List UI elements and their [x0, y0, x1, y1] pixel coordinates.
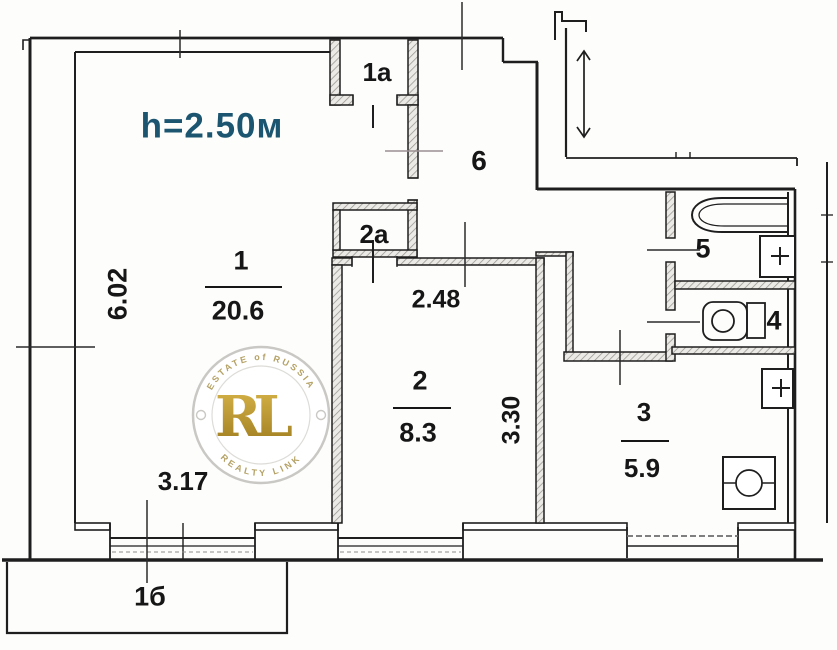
- room4-number: 4: [766, 308, 781, 335]
- bottom-walls-windows: [75, 523, 795, 560]
- watermark-logo: RL ESTATE of RUSSIA REALTY LINK: [193, 347, 329, 483]
- room1-number: 1: [233, 248, 248, 275]
- room2-number: 2: [412, 368, 427, 395]
- dim-room2-width: 2.48: [412, 288, 461, 313]
- room2-area: 8.3: [399, 420, 437, 447]
- room1-fraction-line: [205, 286, 282, 288]
- watermark-monogram: RL: [215, 384, 293, 450]
- dim-room1-width: 3.17: [158, 468, 209, 494]
- room3-area: 5.9: [624, 455, 660, 481]
- room1-area: 20.6: [212, 298, 265, 325]
- stove-icon: [723, 457, 775, 509]
- room5-number: 5: [695, 236, 710, 263]
- ring-dot-right: [317, 411, 326, 420]
- window-room2: [338, 523, 463, 560]
- balcony-label: 1б: [134, 584, 166, 611]
- ceiling-height-note: h=2.50м: [141, 109, 284, 144]
- room3-number: 3: [637, 399, 651, 425]
- closet-2a-label: 2a: [360, 221, 389, 247]
- room3-fraction-line: [621, 440, 669, 442]
- floor-plan-drawing: RL ESTATE of RUSSIA REALTY LINK: [0, 0, 837, 650]
- dim-room1-depth: 6.02: [105, 268, 132, 321]
- shaft-notch: [555, 12, 586, 40]
- window-kitchen: [627, 527, 738, 558]
- ring-dot-left: [197, 411, 206, 420]
- floor-plan: RL ESTATE of RUSSIA REALTY LINK h=2.50м …: [0, 0, 837, 650]
- dim-room2-depth: 3.30: [500, 396, 525, 445]
- room6-number: 6: [471, 147, 487, 175]
- bathtub-icon: [692, 198, 788, 232]
- interior-walls: [330, 40, 795, 523]
- window-room1: [110, 523, 255, 560]
- closet-1a-label: 1a: [363, 59, 392, 85]
- vent-box-icon-2: [762, 369, 793, 408]
- room2-fraction-line: [393, 407, 451, 409]
- toilet-icon: [703, 302, 765, 340]
- vent-box-icon: [760, 236, 795, 277]
- stair-arrow-icon: [577, 51, 590, 137]
